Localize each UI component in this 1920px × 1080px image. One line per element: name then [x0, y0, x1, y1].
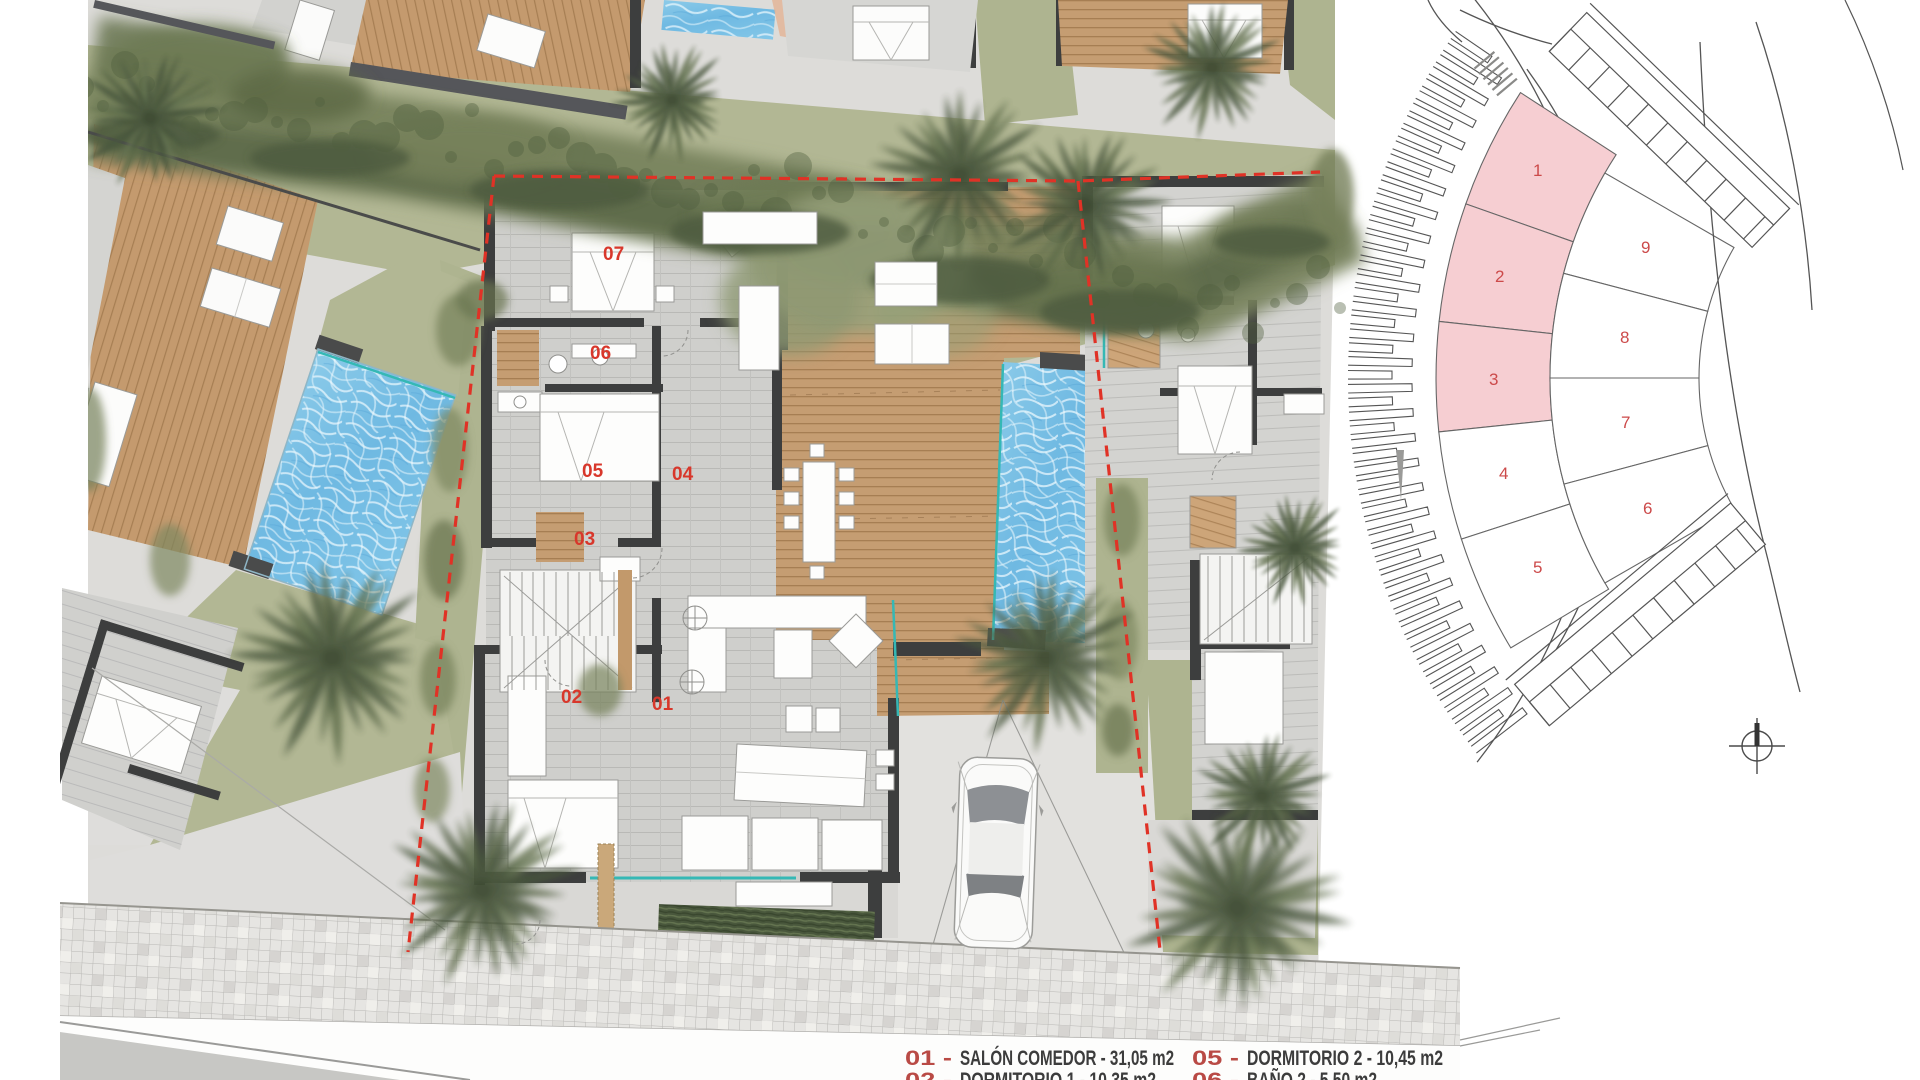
svg-text:06: 06 [590, 343, 611, 364]
svg-text:6: 6 [1643, 499, 1652, 518]
svg-text:06 -: 06 - [1192, 1069, 1239, 1080]
svg-text:04: 04 [672, 464, 694, 485]
svg-text:3: 3 [1489, 370, 1498, 389]
svg-text:8: 8 [1620, 328, 1629, 347]
svg-text:DORMITORIO 2 - 10,45 m2: DORMITORIO 2 - 10,45 m2 [1247, 1047, 1443, 1070]
svg-text:01: 01 [652, 694, 674, 715]
svg-text:5: 5 [1533, 558, 1542, 577]
svg-text:7: 7 [1621, 413, 1630, 432]
svg-text:02 -: 02 - [905, 1069, 952, 1080]
svg-text:1: 1 [1533, 161, 1542, 180]
svg-text:9: 9 [1641, 238, 1650, 257]
svg-text:DORMITORIO 1 - 10,35 m2: DORMITORIO 1 - 10,35 m2 [960, 1069, 1156, 1080]
svg-text:07: 07 [603, 244, 624, 265]
svg-text:2: 2 [1495, 267, 1504, 286]
svg-text:BAÑO 2 - 5,50 m2: BAÑO 2 - 5,50 m2 [1247, 1069, 1377, 1080]
svg-text:05 -: 05 - [1192, 1047, 1239, 1070]
svg-text:05: 05 [582, 461, 604, 482]
svg-text:03: 03 [574, 529, 595, 550]
svg-text:01 -: 01 - [905, 1047, 952, 1070]
svg-text:02: 02 [561, 687, 582, 708]
svg-text:4: 4 [1499, 464, 1508, 483]
svg-text:SALÓN COMEDOR - 31,05 m2: SALÓN COMEDOR - 31,05 m2 [960, 1046, 1174, 1070]
